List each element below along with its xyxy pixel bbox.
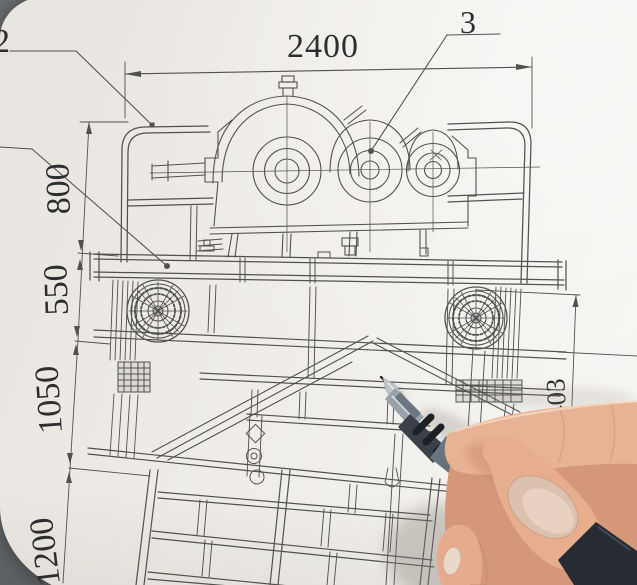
dim-1200-label: 1200	[23, 516, 68, 585]
balloon-2-leader	[10, 51, 155, 128]
balloon-3-leader	[368, 34, 500, 154]
dim-1050-label: 1050	[28, 365, 70, 435]
dim-550-label: 550	[37, 264, 76, 316]
spring-plate-stack-left	[118, 362, 150, 392]
photo-of-engineering-drawing: 2400 3 2 800 550 1050 1200 1403	[0, 0, 637, 585]
deck-band	[90, 240, 566, 290]
gearbox	[150, 76, 540, 257]
hand	[437, 401, 637, 585]
dimension-top-2400	[125, 57, 532, 128]
dim-2400-label: 2400	[287, 28, 359, 65]
technical-drawing: 2400 3 2 800 550 1050 1200 1403	[0, 0, 637, 585]
dim-800-label: 800	[39, 163, 78, 215]
balloon-2-label: 2	[0, 23, 10, 60]
balloon-3-label: 3	[460, 4, 476, 40]
machine-frame	[121, 122, 531, 283]
